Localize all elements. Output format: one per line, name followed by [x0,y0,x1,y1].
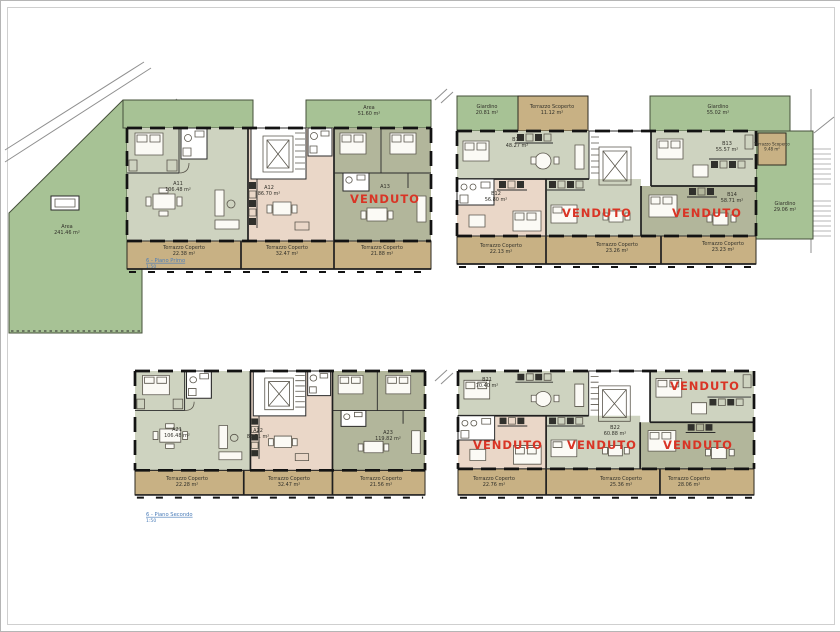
terrace-label: Terrazzo Coperto25.36 m² [600,476,642,489]
venduto-stamp: VENDUTO [473,438,543,452]
unit-label-b22: B2260.88 m² [604,425,627,438]
terrace-label: Terrazzo Coperto22.28 m² [166,476,208,489]
unit-label-b14: B1458.71 m² [721,192,744,205]
caption-floor1: 6 - Piano Primo1:50 [146,257,185,271]
unit-label-a13: A13 [380,184,390,190]
terrace-label: Terrazzo Coperto22.13 m² [480,243,522,256]
venduto-stamp: VENDUTO [670,379,740,393]
unit-label-b13: B1355.57 m² [716,141,739,154]
terrace-label: Terrazzo Coperto21.88 m² [361,245,403,258]
terrace-label: Terrazzo Coperto23.26 m² [596,242,638,255]
venduto-stamp: VENDUTO [350,192,420,206]
floor-plan-drawing [1,1,840,631]
unit-label-a23: A23119.82 m² [375,430,401,443]
unit-label-a11: A11106.48 m² [165,181,191,194]
garden-label: Giardino29.06 m² [774,201,797,214]
venduto-stamp: VENDUTO [672,206,742,220]
unit-label-a12: A1286.70 m² [258,185,281,198]
terrace-label: Terrazzo Coperto21.56 m² [360,476,402,489]
terrace-label: Terrazzo Coperto32.47 m² [268,476,310,489]
unit-label-a21: A21106.48 m² [164,427,190,440]
unit-label-a22: A2288.51 m² [247,428,270,441]
garden-label: Giardino55.02 m² [707,104,730,117]
terrace-label: Terrazzo Coperto22.76 m² [473,476,515,489]
garden-area-label: Area241.46 m² [54,224,80,237]
top-area-label: Area51.60 m² [358,105,381,118]
venduto-stamp: VENDUTO [567,438,637,452]
terrazzo-scoperto-label: Terrazzo Scoperto9.48 m² [754,142,790,152]
unit-label-b12: B1256.80 m² [485,191,508,204]
terrace-label: Terrazzo Coperto28.06 m² [668,476,710,489]
terrace-label: Terrazzo Coperto22.38 m² [163,245,205,258]
venduto-stamp: VENDUTO [663,438,733,452]
caption-floor2: 6 - Piano Secondo1:50 [146,511,193,525]
venduto-stamp: VENDUTO [562,206,632,220]
unit-label-b21: B2170.40 m² [476,377,499,390]
garden-label: Giardino20.81 m² [476,104,499,117]
terrazzo-scoperto-label: Terrazzo Scoperto11.12 m² [530,104,574,117]
unit-label-b11: B1148.27 m² [506,137,529,150]
drawing-sheet: Area241.46 m² Area51.60 m² A11106.48 m² … [0,0,840,632]
terrace-label: Terrazzo Coperto32.47 m² [266,245,308,258]
terrace-label: Terrazzo Coperto23.23 m² [702,241,744,254]
